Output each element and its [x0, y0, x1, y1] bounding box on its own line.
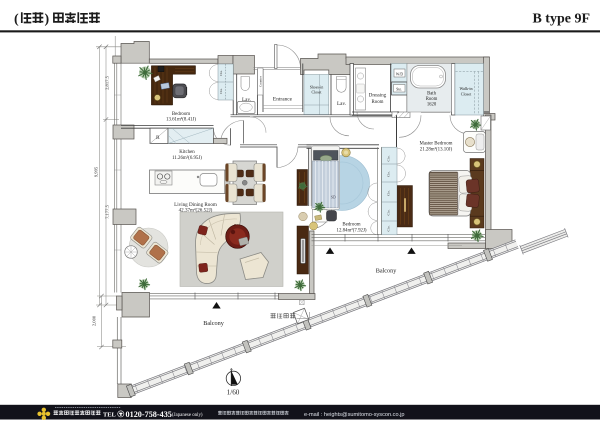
svg-text:0120-758-435: 0120-758-435 — [126, 410, 172, 419]
svg-text:(: ( — [14, 12, 19, 27]
svg-text:Closet: Closet — [312, 91, 323, 95]
svg-text:Sto.: Sto. — [396, 87, 402, 91]
svg-text:12.84m²(7.92J): 12.84m²(7.92J) — [337, 228, 367, 234]
svg-text:Master Bedroom: Master Bedroom — [419, 142, 452, 147]
svg-text:Clo.: Clo. — [387, 190, 391, 196]
svg-text:Clo.: Clo. — [219, 70, 223, 76]
svg-text:Clo.: Clo. — [387, 209, 391, 215]
svg-text:W/D: W/D — [396, 72, 404, 76]
svg-text:Kitchen: Kitchen — [179, 150, 195, 155]
svg-text:Entrance: Entrance — [273, 97, 293, 103]
svg-text:Bath: Bath — [427, 92, 437, 97]
svg-text:Closet: Closet — [461, 92, 472, 97]
svg-text:TEL: TEL — [103, 412, 116, 419]
svg-text:Balcony: Balcony — [376, 268, 398, 275]
svg-text:SD: SD — [331, 196, 336, 200]
svg-text:Lav.: Lav. — [242, 97, 251, 103]
svg-text:Clo.: Clo. — [219, 88, 223, 94]
svg-text:Lav.: Lav. — [337, 101, 346, 107]
svg-text:42.37m²(26.52J): 42.37m²(26.52J) — [179, 206, 213, 213]
svg-text:21.28m²(13.10J): 21.28m²(13.10J) — [420, 147, 453, 153]
svg-text:Room: Room — [426, 97, 438, 102]
svg-text:Shoes-in: Shoes-in — [310, 86, 324, 90]
svg-text:(Japanese only): (Japanese only) — [172, 413, 203, 418]
svg-text:Room: Room — [372, 100, 384, 105]
svg-text:Clo.: Clo. — [387, 171, 391, 177]
svg-text:Walk-in: Walk-in — [459, 86, 472, 91]
svg-text:Clo.: Clo. — [387, 155, 391, 161]
svg-text:Bedroom: Bedroom — [172, 112, 190, 117]
svg-text:Counter: Counter — [259, 75, 263, 87]
svg-text:e-mail : heights@sumitomo-sysc: e-mail : heights@sumitomo-syscon.co.jp — [304, 412, 405, 418]
svg-text:B type 9F: B type 9F — [532, 11, 590, 26]
svg-text:Balcony: Balcony — [203, 320, 225, 327]
svg-text:Clo.: Clo. — [387, 225, 391, 231]
svg-text:Bedroom: Bedroom — [342, 223, 360, 228]
svg-text:R: R — [156, 135, 160, 141]
svg-text:13.61m²(8.41J): 13.61m²(8.41J) — [166, 116, 196, 122]
svg-text:11.26m²(6.95J): 11.26m²(6.95J) — [172, 155, 202, 161]
svg-text:): ) — [45, 12, 50, 27]
svg-text:1/60: 1/60 — [227, 388, 240, 396]
svg-text:1620: 1620 — [427, 103, 437, 108]
svg-text:Dressing: Dressing — [369, 94, 387, 99]
